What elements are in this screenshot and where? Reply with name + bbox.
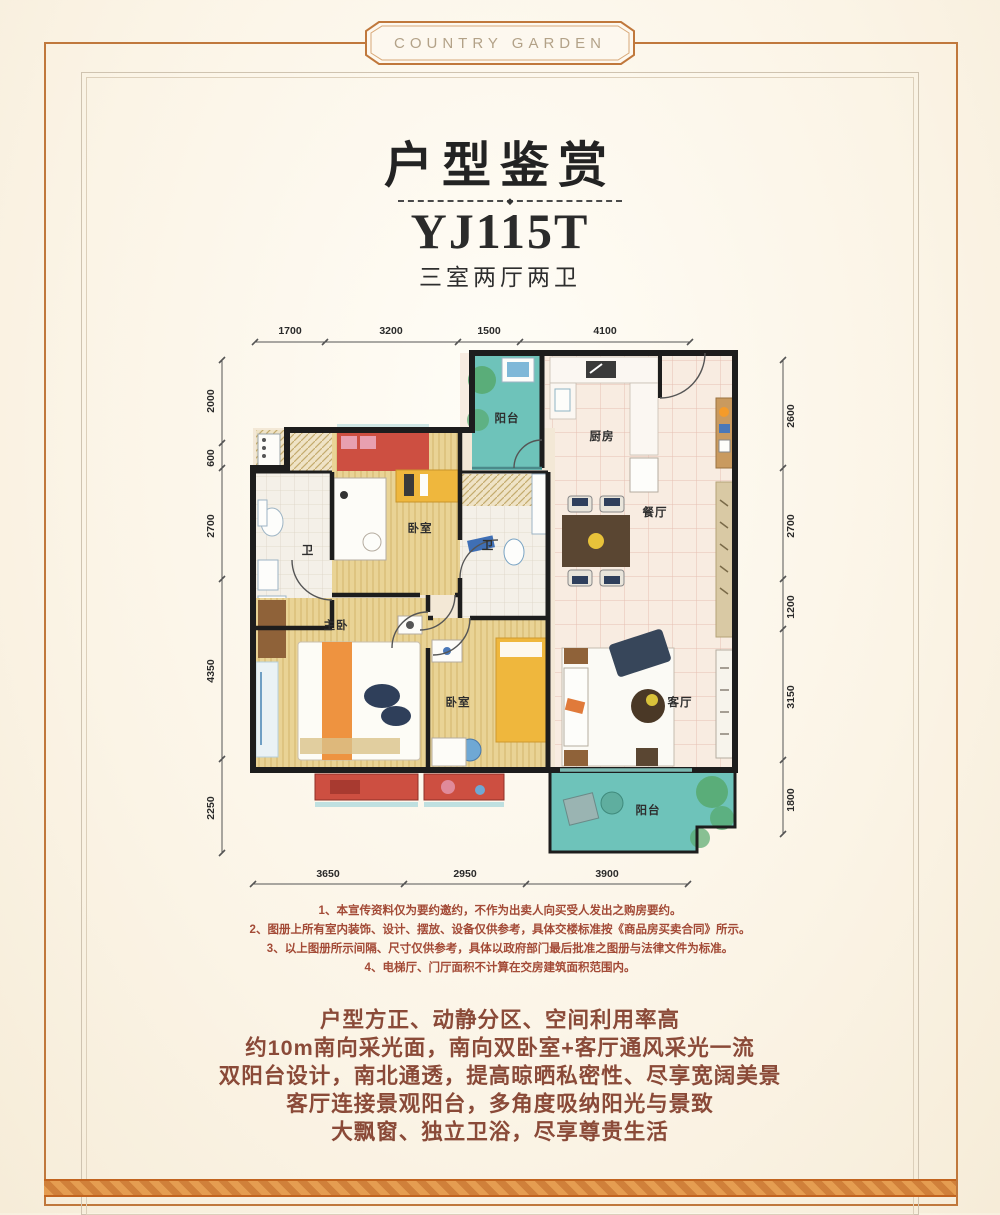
selling-point-line: 户型方正、动静分区、空间利用率高	[0, 1006, 1000, 1034]
disclaimer-line: 3、以上图册所示间隔、尺寸仅供参考，具体以政府部门最后批准之图册与法律文件为标准…	[0, 940, 1000, 959]
brand-logo-text: COUNTRY GARDEN	[394, 35, 606, 52]
dim-right-2: 2700	[785, 514, 797, 538]
chair-icon	[363, 533, 381, 551]
selling-point-line: 约10m南向采光面，南向双卧室+客厅通风采光一流	[0, 1034, 1000, 1062]
dim-top-2: 3200	[379, 325, 403, 337]
bay-decor	[475, 785, 485, 795]
dim-left-4: 4350	[205, 659, 217, 683]
window-sill	[315, 802, 418, 807]
washbasin-icon	[258, 560, 278, 590]
pillow-icon	[360, 436, 376, 449]
lamp-icon	[406, 621, 414, 629]
room-label-master-bedroom: 主卧	[324, 618, 349, 632]
bath-cabinet-icon	[532, 474, 546, 534]
lamp-icon	[340, 491, 348, 499]
flower-icon	[646, 694, 658, 706]
floor-plan: 阳台 厨房 餐厅 卧室 卫 卫 主卧 卧室 客厅 阳台 17	[185, 305, 805, 897]
room-label-dining: 餐厅	[642, 505, 668, 519]
room-label-bedroom-south: 卧室	[446, 695, 471, 709]
unit-code: YJ115T	[0, 202, 1000, 260]
books-icon	[420, 474, 428, 496]
knob-icon	[262, 454, 266, 458]
dim-bottom-1: 3650	[316, 868, 340, 880]
plant-icon	[690, 828, 710, 848]
disclaimer-line: 4、电梯厅、门厅面积不计算在交房建筑面积范围内。	[0, 959, 1000, 978]
pillow-dark-icon	[364, 684, 400, 708]
tv-cabinet-icon	[716, 650, 733, 758]
side-table-icon	[564, 648, 588, 664]
selling-points: 户型方正、动静分区、空间利用率高 约10m南向采光面，南向双卧室+客厅通风采光一…	[0, 1006, 1000, 1146]
bay-window-red	[424, 774, 504, 800]
bay-cushion	[330, 780, 360, 794]
sink-basin-icon	[555, 389, 570, 411]
room-label-bath-1: 卫	[302, 544, 315, 557]
room-label-kitchen: 厨房	[590, 429, 615, 443]
toilet-tank-icon	[258, 500, 267, 526]
side-table-icon	[564, 750, 588, 766]
books-icon	[404, 474, 414, 496]
dim-top-1: 1700	[278, 325, 302, 337]
dim-left-5: 2250	[205, 796, 217, 820]
brand-plaque-frame: COUNTRY GARDEN	[365, 21, 635, 65]
room-label-balcony-south: 阳台	[636, 803, 661, 817]
page-title: 户型鉴赏	[0, 126, 1000, 197]
room-label-bath-2: 卫	[482, 539, 495, 552]
window-sill	[424, 802, 504, 807]
plant-icon	[696, 776, 728, 808]
dim-right-4: 3150	[785, 685, 797, 709]
stool-icon	[636, 748, 658, 766]
brochure-page: COUNTRY GARDEN 户型鉴赏 ◆ YJ115T 三室两厅两卫	[0, 0, 1000, 1213]
pillow-icon	[500, 642, 542, 657]
dim-left-3: 2700	[205, 514, 217, 538]
decor-icon	[719, 424, 730, 433]
disclaimer-notes: 1、本宣传资料仅为要约邀约，不作为出卖人向买受人发出之购房要约。 2、图册上所有…	[0, 902, 1000, 978]
toilet-icon	[504, 539, 524, 565]
room-label-living: 客厅	[667, 695, 693, 709]
dim-right-3: 1200	[785, 595, 797, 619]
dim-bottom-3: 3900	[595, 868, 619, 880]
dim-bottom-2: 2950	[453, 868, 477, 880]
dresser-icon	[432, 738, 466, 766]
shower-area	[462, 474, 532, 506]
kitchen-counter-right	[630, 383, 658, 455]
dim-left-2: 600	[205, 449, 217, 467]
teapot-icon	[588, 533, 604, 549]
brand-plaque: COUNTRY GARDEN	[365, 21, 635, 65]
rug-icon	[300, 738, 400, 754]
disclaimer-line: 2、图册上所有室内装饰、设计、摆放、设备仅供参考，具体交楼标准按《商品房买卖合同…	[0, 921, 1000, 940]
pillow-dark-icon	[381, 706, 411, 726]
dim-top-4: 4100	[593, 325, 617, 337]
knob-icon	[262, 438, 266, 442]
hall-cabinet-icon	[716, 482, 733, 637]
window-seat	[256, 662, 278, 757]
room-label-balcony-north: 阳台	[495, 411, 520, 425]
decor-icon	[719, 440, 730, 452]
dim-right-5: 1800	[785, 788, 797, 812]
pillow-icon	[341, 436, 357, 449]
disclaimer-line: 1、本宣传资料仅为要约邀约，不作为出卖人向买受人发出之购房要约。	[0, 902, 1000, 921]
decor-icon	[719, 407, 729, 417]
dim-left-1: 2000	[205, 389, 217, 413]
coffee-table-icon	[631, 689, 665, 723]
bay-decor	[441, 780, 455, 794]
selling-point-line: 双阳台设计，南北通透，提高晾晒私密性、尽享宽阔美景	[0, 1062, 1000, 1090]
selling-point-line: 大飘窗、独立卫浴，尽享尊贵生活	[0, 1118, 1000, 1146]
bottom-ornament-band	[44, 1179, 956, 1197]
round-table-icon	[601, 792, 623, 814]
washer-icon	[507, 362, 529, 377]
dim-right-1: 2600	[785, 404, 797, 428]
room-label-bedroom-north: 卧室	[408, 521, 433, 535]
dim-top-3: 1500	[477, 325, 501, 337]
unit-type: 三室两厅两卫	[0, 258, 1000, 292]
knob-icon	[262, 446, 266, 450]
selling-point-line: 客厅连接景观阳台，多角度吸纳阳光与景致	[0, 1090, 1000, 1118]
washing-machine-icon	[258, 434, 280, 470]
fridge-icon	[630, 458, 658, 492]
